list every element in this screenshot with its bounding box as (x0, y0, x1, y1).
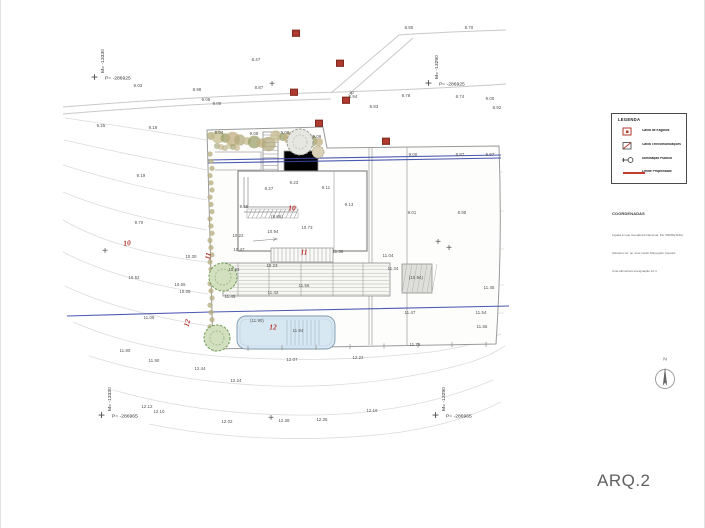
tree-green-1 (209, 263, 237, 291)
main-building (238, 171, 367, 251)
survey-cross-icon: + (98, 408, 105, 422)
north-arrow: N (649, 356, 681, 396)
survey-cross-icon: + (425, 76, 432, 90)
swimming-pool (237, 316, 335, 349)
terrace-stairs (271, 248, 333, 262)
legend-box: LEGENDA Caixa de Esgotos Caixa Telecomun… (611, 113, 687, 184)
coordinate-m-label: M= -13290 (440, 387, 446, 411)
tree-gray (287, 129, 313, 155)
coordinate-p-label: P= -286965 (446, 413, 472, 419)
survey-cross-icon: + (91, 70, 98, 84)
drawing-sheet: 8.808.708.479.038.988.879.059.008.948.78… (0, 0, 705, 528)
telecom-box-icon (620, 141, 636, 151)
deck-terrace (223, 263, 390, 296)
legend-item-limit: Limite Propriedade (612, 168, 686, 180)
legend-item-light: Iluminação Pública (612, 155, 686, 167)
survey-cross-icon: + (432, 408, 439, 422)
planter-box (402, 264, 437, 293)
sheet-code: ARQ.2 (597, 471, 651, 491)
coordinate-p-label: P= -286965 (112, 413, 138, 419)
coordinate-p-label: P= -286925 (105, 75, 131, 81)
coordinate-m-label: M= -13330 (106, 387, 112, 411)
street-light-icon (620, 155, 636, 165)
sewage-box-icon (620, 127, 636, 137)
legend-item-telecom: Caixa Telecomunicações (612, 141, 686, 153)
shrub (312, 146, 324, 158)
coordinates-notes: COORDENADAS Ligada à rede Geodésica Naci… (612, 204, 697, 279)
legend-header: LEGENDA (618, 118, 640, 122)
legend-item-sewage: Caixa de Esgotos (612, 127, 686, 139)
notes-header: COORDENADAS (612, 212, 645, 216)
coordinate-m-label: M= -13330 (99, 49, 105, 73)
road-lines (63, 30, 506, 114)
coordinate-p-label: P= -286925 (439, 81, 465, 87)
tree-green-2 (204, 325, 230, 351)
property-limit-line (620, 168, 636, 178)
north-arrow-icon (649, 356, 681, 396)
coordinate-m-label: M= -13290 (433, 55, 439, 79)
